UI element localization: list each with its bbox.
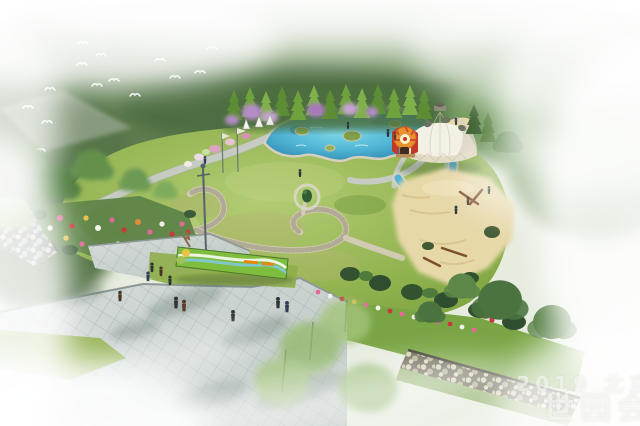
park-scene-canvas xyxy=(0,0,640,426)
park-aerial-rendering: 2019 北京 世园会 xyxy=(0,0,640,426)
fog-overlay xyxy=(0,0,640,426)
